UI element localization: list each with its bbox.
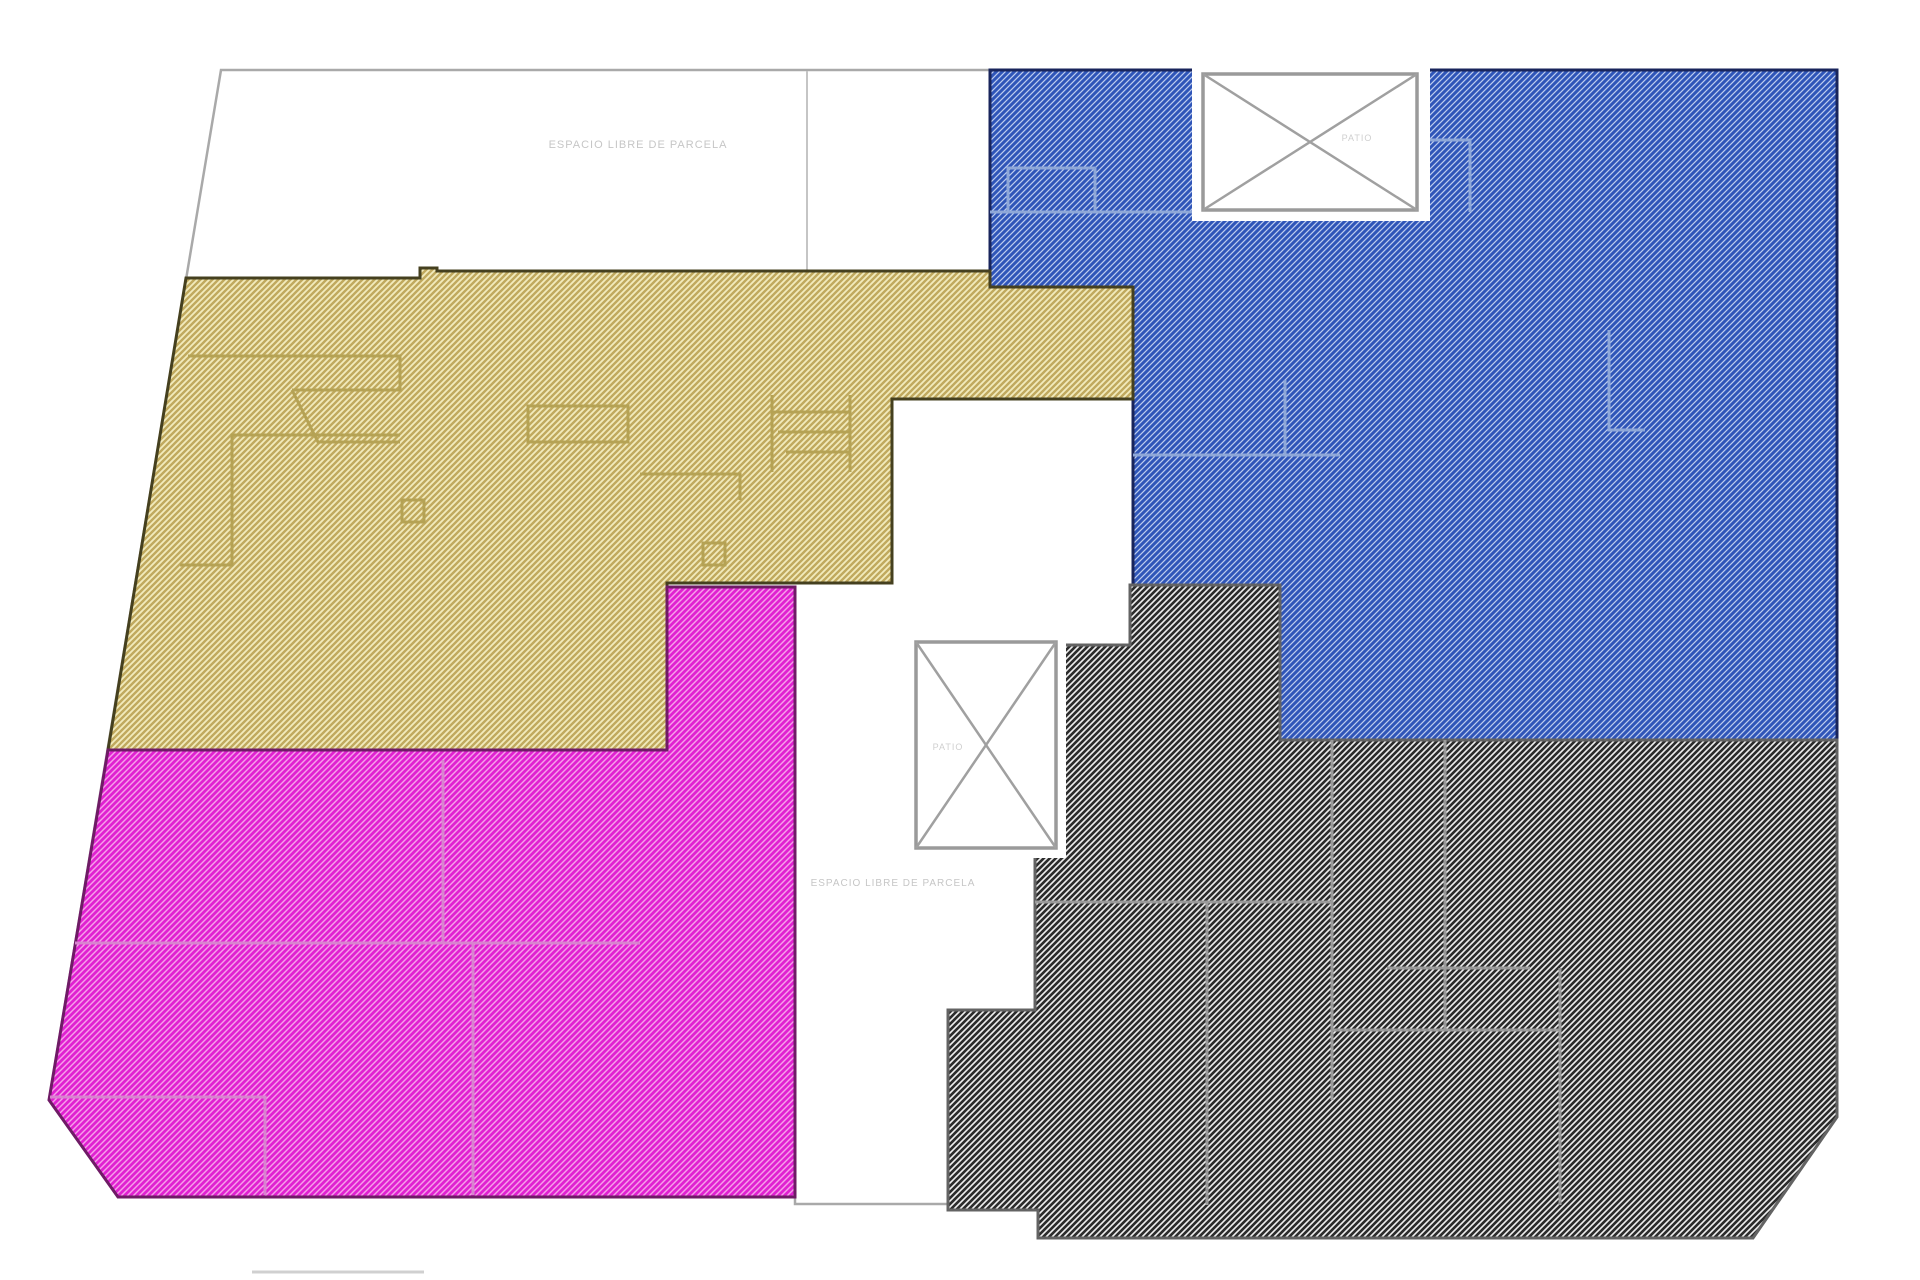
lightwell-middle: PATIO <box>906 632 1066 858</box>
floor-plan-page: PATIO PATIO ESPACIO LIBRE DE PARCELA ESP… <box>0 0 1920 1280</box>
lightwell-top-label: PATIO <box>1342 133 1373 143</box>
courtyard-label-bottom: ESPACIO LIBRE DE PARCELA <box>811 878 976 889</box>
lightwell-middle-label: PATIO <box>933 742 964 752</box>
floor-plan-svg: PATIO PATIO ESPACIO LIBRE DE PARCELA ESP… <box>0 0 1920 1280</box>
courtyard-label-top: ESPACIO LIBRE DE PARCELA <box>549 139 728 151</box>
lightwell-top: PATIO <box>1192 65 1430 221</box>
